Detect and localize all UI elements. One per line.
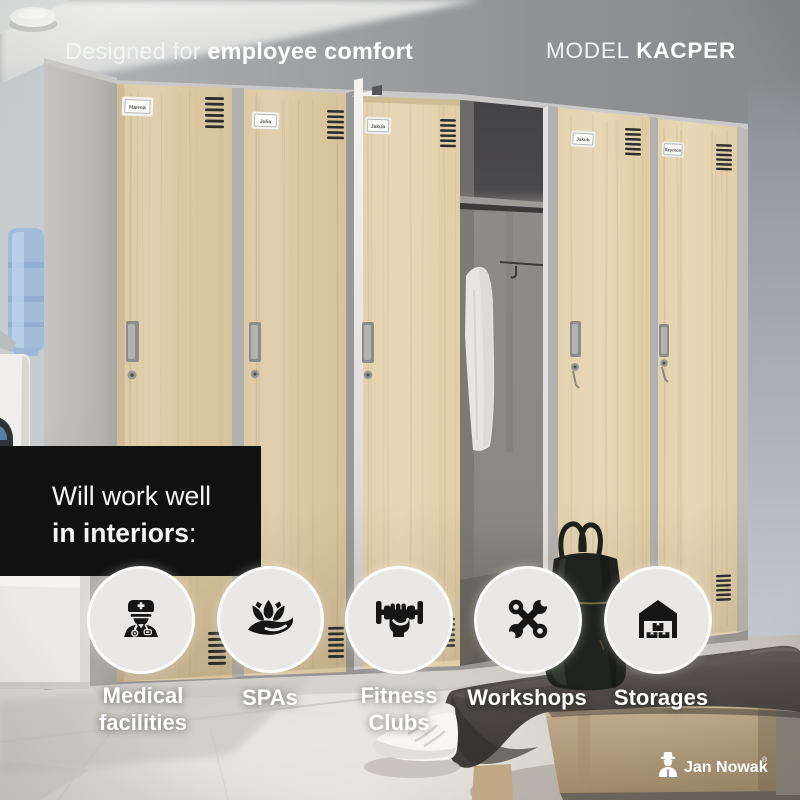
svg-text:®: ®	[762, 756, 768, 764]
svg-text:Jan Nowak: Jan Nowak	[684, 759, 768, 776]
